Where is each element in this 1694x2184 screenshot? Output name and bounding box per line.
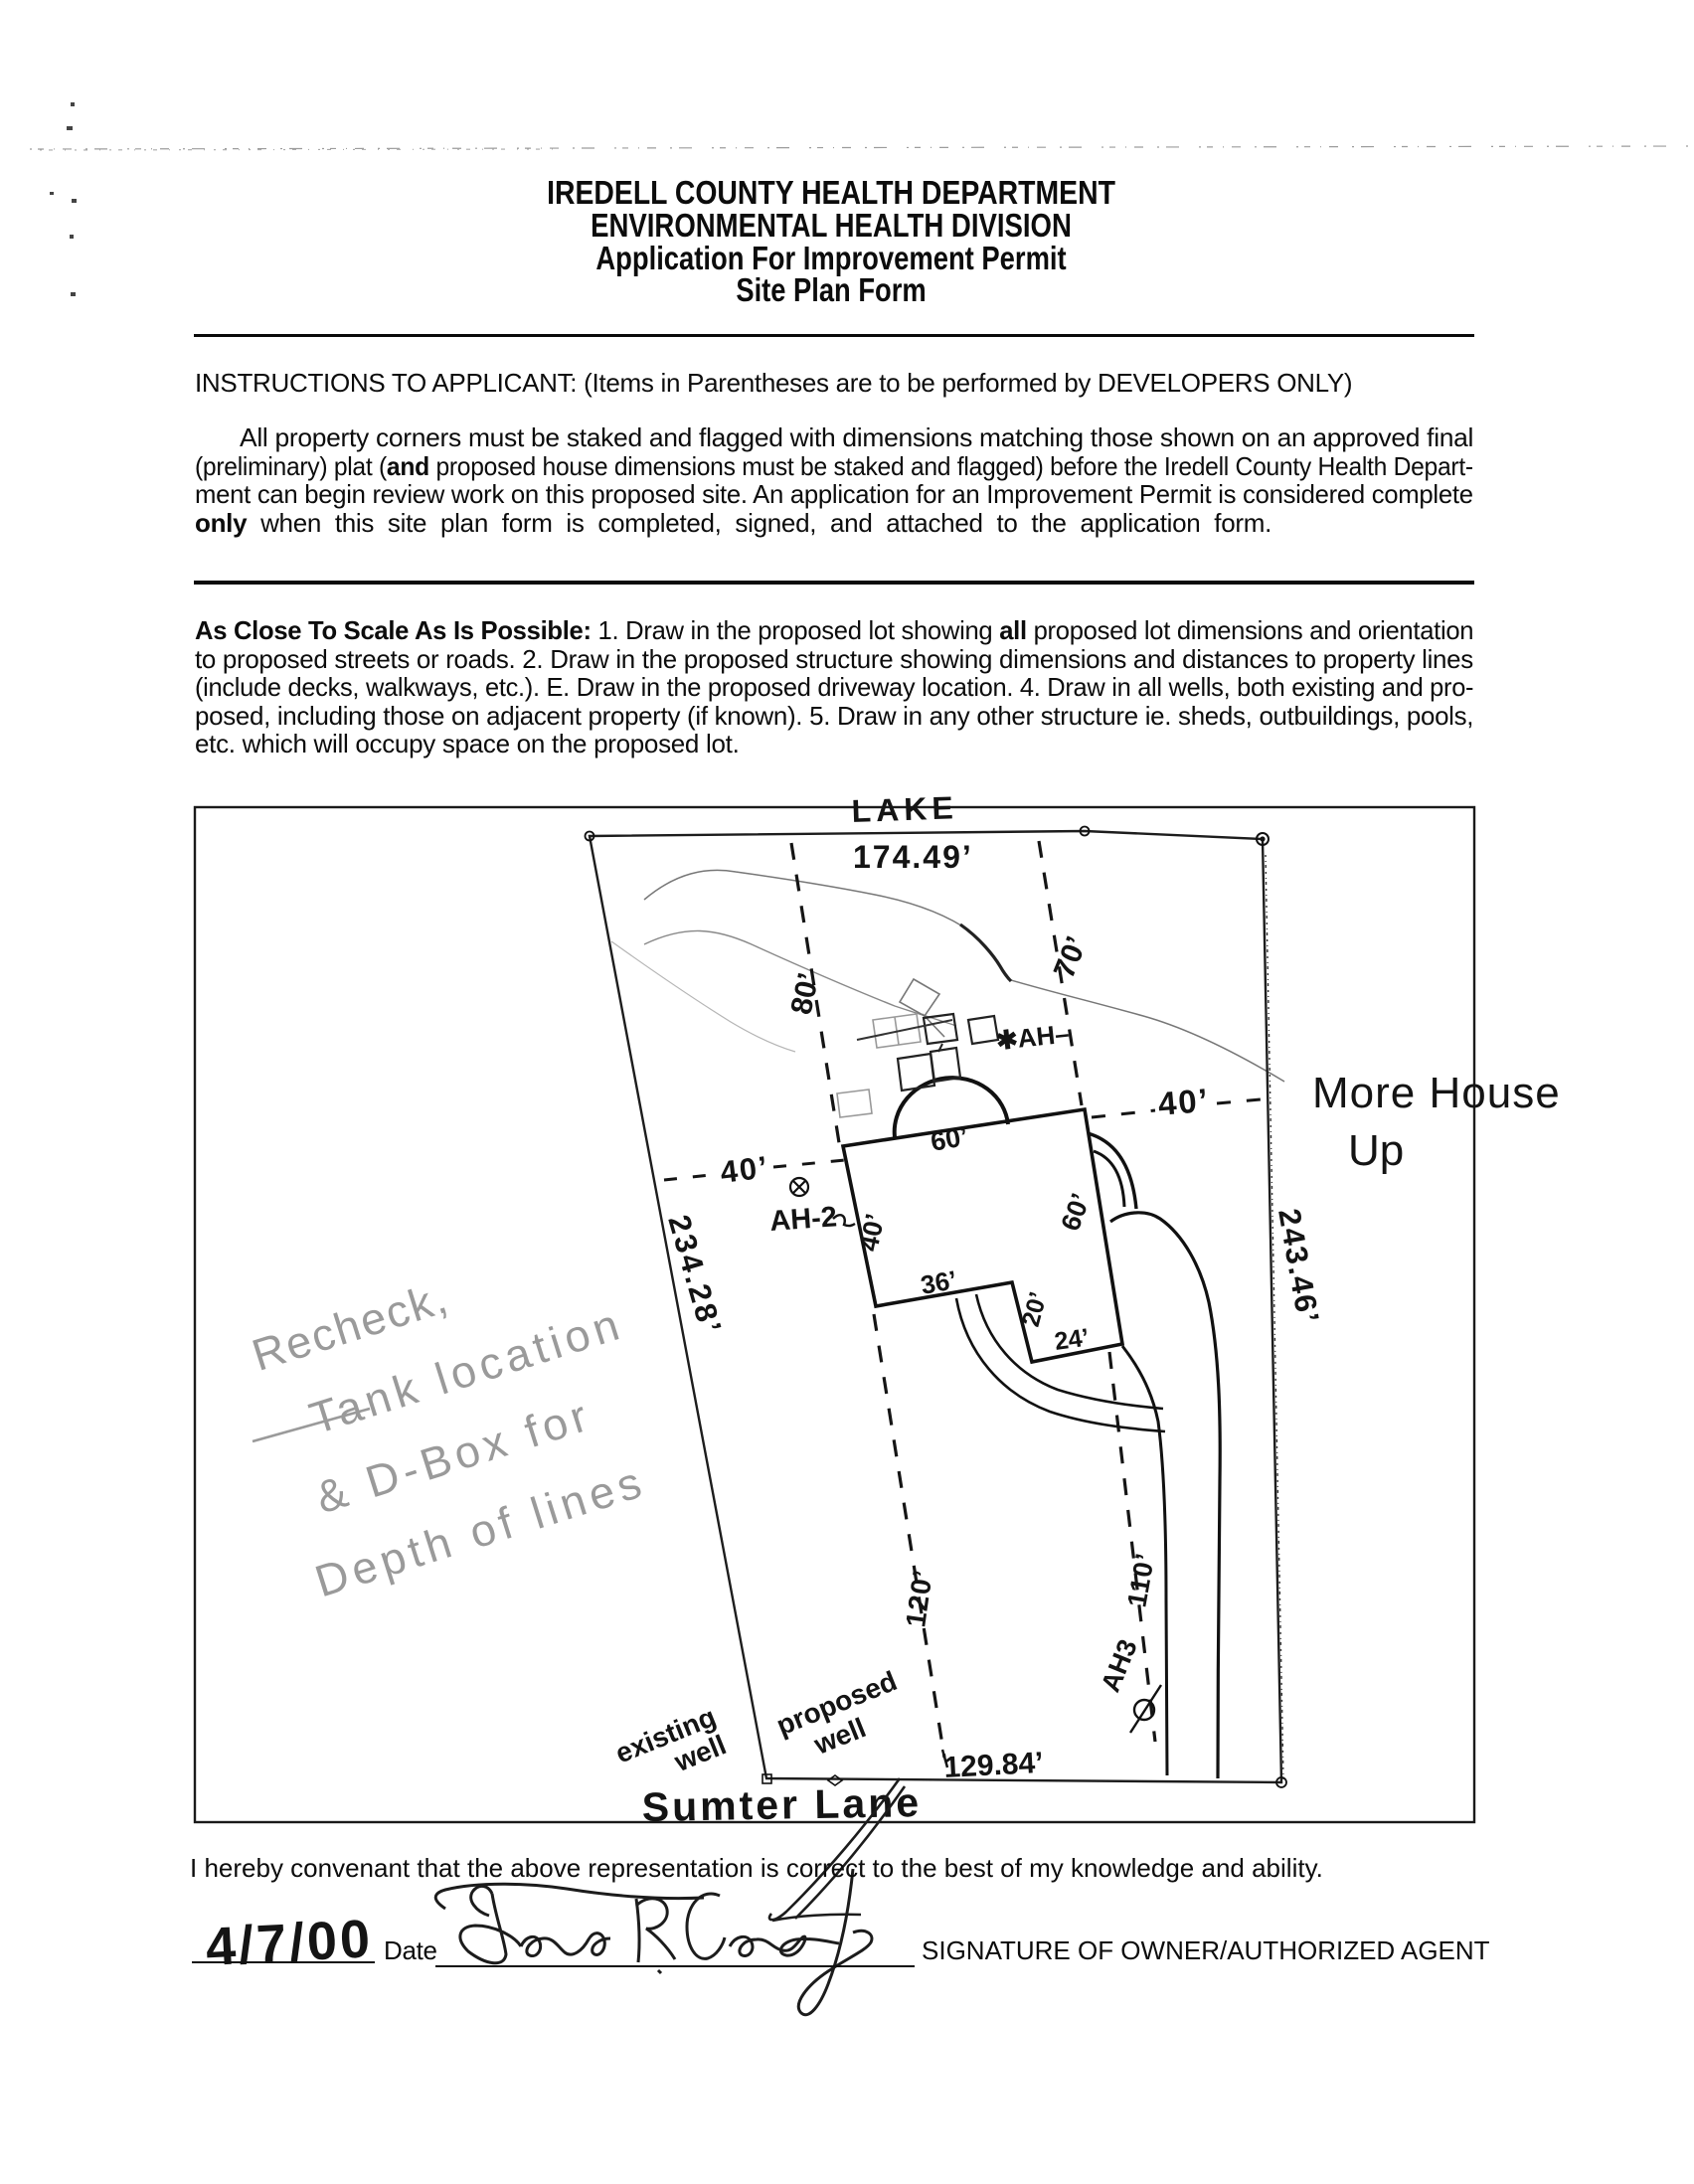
svg-text:120’: 120’ — [900, 1568, 938, 1629]
svg-text:AH3: AH3 — [1096, 1635, 1143, 1696]
svg-text:More House: More House — [1312, 1069, 1561, 1117]
svg-text:Up: Up — [1348, 1126, 1404, 1175]
svg-text:174.49’: 174.49’ — [853, 839, 973, 875]
svg-text:✱AH–: ✱AH– — [994, 1018, 1071, 1056]
svg-text:60’: 60’ — [1055, 1190, 1096, 1236]
svg-text:20’: 20’ — [1017, 1289, 1053, 1330]
svg-text:LAKE: LAKE — [851, 789, 958, 829]
svg-text:24’: 24’ — [1053, 1323, 1091, 1356]
svg-text:40’: 40’ — [1156, 1082, 1211, 1122]
svg-text:110’: 110’ — [1121, 1551, 1160, 1609]
svg-text:129.84’: 129.84’ — [943, 1747, 1045, 1784]
svg-text:243.46’: 243.46’ — [1271, 1206, 1326, 1327]
svg-text:40’: 40’ — [854, 1211, 891, 1254]
svg-text:40’: 40’ — [719, 1149, 771, 1190]
svg-text:60’: 60’ — [929, 1121, 970, 1157]
svg-text:4/7/00: 4/7/00 — [204, 1909, 374, 1977]
svg-text:AH-2: AH-2 — [768, 1201, 838, 1238]
svg-text:36’: 36’ — [919, 1264, 959, 1300]
